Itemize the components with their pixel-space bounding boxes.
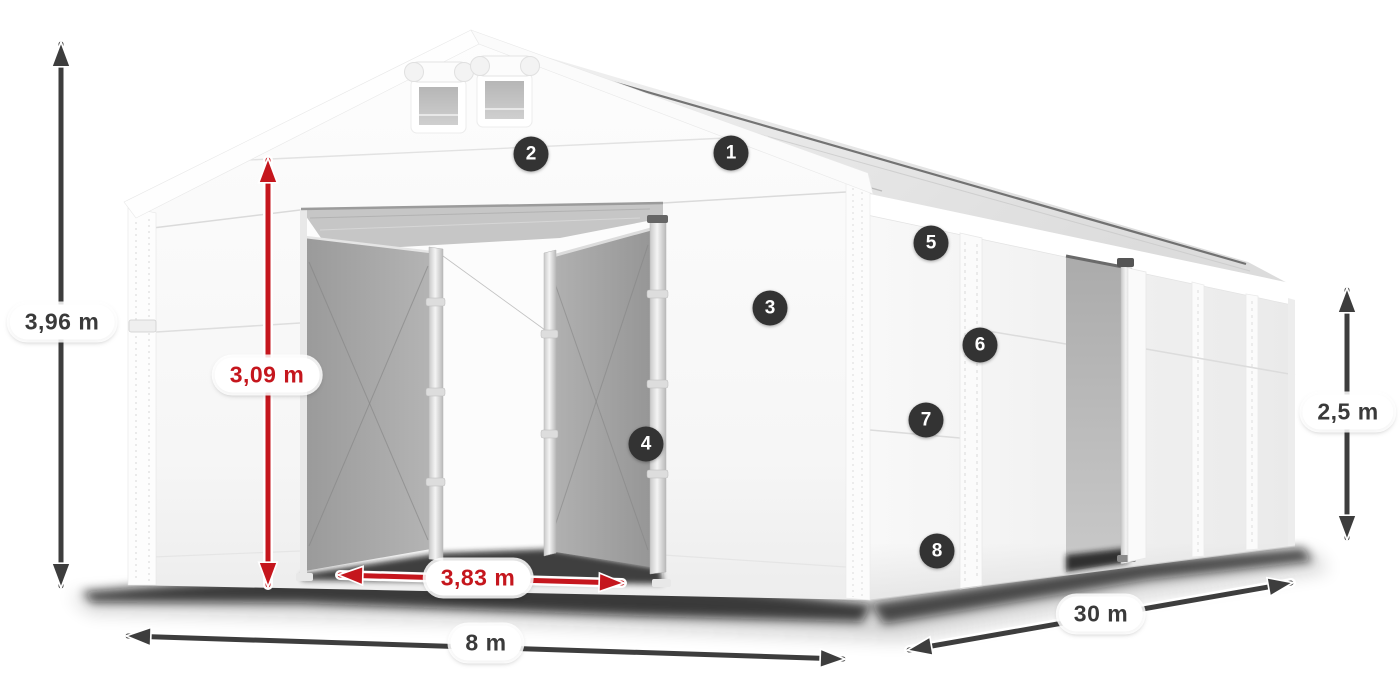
base-plate (296, 573, 313, 581)
total-height-label: 3,96 m (10, 305, 115, 340)
feature-marker-3[interactable]: 3 (753, 291, 788, 326)
door-height-label: 3,09 m (215, 358, 320, 393)
front-width-label: 8 m (450, 626, 521, 661)
left-corner-band (128, 207, 156, 585)
tent-dimension-diagram: 3,96 m 3,09 m 3,83 m 8 m 30 m 2,5 m 1 2 … (0, 0, 1400, 700)
side-height-label: 2,5 m (1302, 395, 1393, 430)
feature-marker-4[interactable]: 4 (629, 427, 664, 462)
door-width-label: 3,83 m (426, 561, 531, 596)
tent-illustration (0, 0, 1400, 700)
feature-marker-2[interactable]: 2 (514, 137, 549, 172)
entrance-jamb-pole (647, 215, 668, 574)
gable-vent-right (471, 56, 540, 127)
entrance-jamb-edge (300, 209, 307, 577)
feature-marker-7[interactable]: 7 (909, 403, 944, 438)
right-corner-band (846, 178, 870, 600)
side-pole-band (1128, 268, 1146, 562)
feature-marker-1[interactable]: 1 (714, 136, 749, 171)
vent-roller (405, 62, 474, 82)
feature-marker-6[interactable]: 6 (963, 328, 998, 363)
interior-panel-left (305, 237, 431, 571)
interior-panel-right (549, 229, 651, 567)
base-plate (652, 579, 671, 587)
feature-marker-8[interactable]: 8 (920, 534, 955, 569)
gable-vent-left (405, 62, 474, 133)
feature-marker-5[interactable]: 5 (914, 226, 949, 261)
side-door-opening (1066, 256, 1136, 572)
side-pole-band (960, 233, 982, 589)
far-corner-edge (1288, 298, 1295, 547)
entrance-pole (426, 247, 445, 561)
vent-roller (471, 56, 540, 76)
entrance-opening (296, 203, 671, 587)
length-label: 30 m (1059, 597, 1143, 632)
